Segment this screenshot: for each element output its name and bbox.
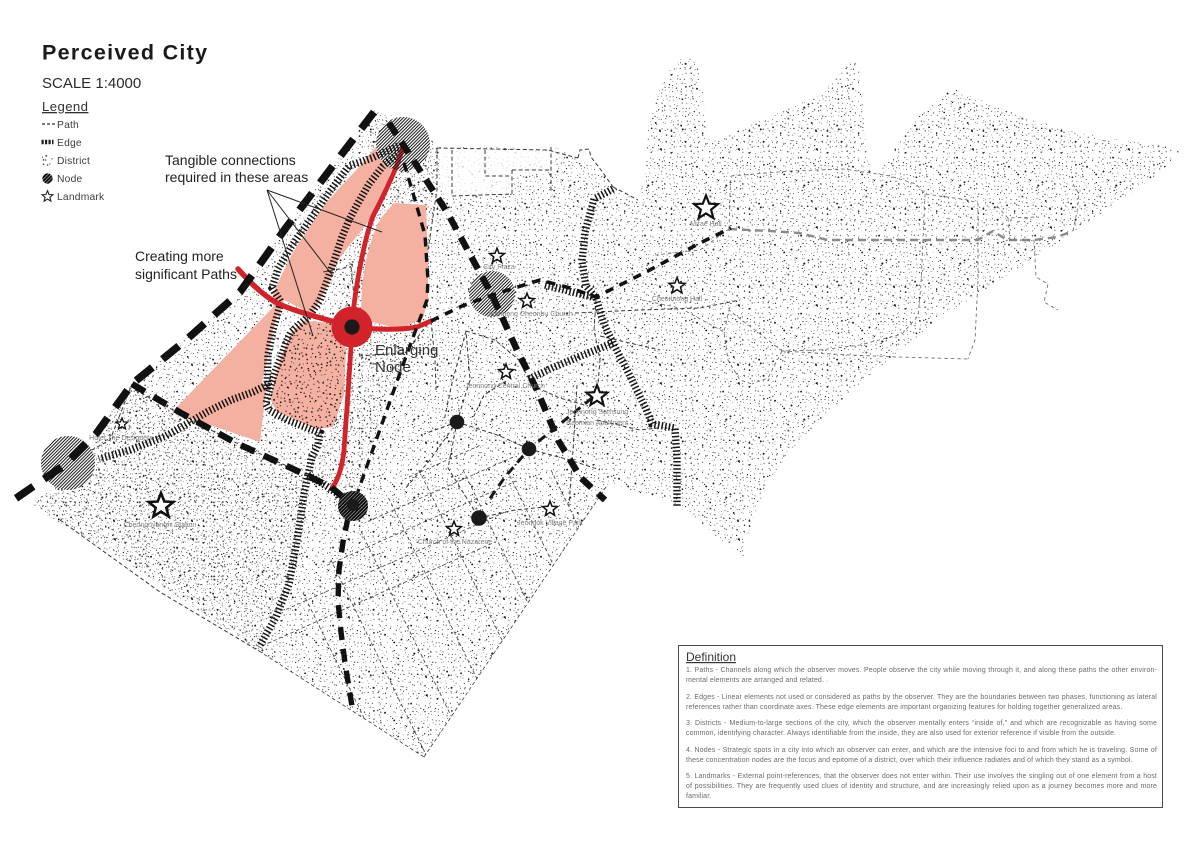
svg-text:Node: Node [57,174,82,185]
svg-text:Definition: Definition [686,650,736,664]
svg-text:Enlarging: Enlarging [375,342,438,359]
svg-text:Cheongnyangni Station: Cheongnyangni Station [124,522,197,529]
svg-text:SCALE 1:4000: SCALE 1:4000 [42,75,141,92]
svg-text:Perceived City: Perceived City [42,41,208,65]
svg-text:Jeonnong Cheonbu Church: Jeonnong Cheonbu Church [487,311,573,318]
svg-text:Cheonnong Hall: Cheonnong Hall [652,296,703,303]
svg-text:Edge: Edge [57,138,82,149]
svg-text:Raemian Apartment: Raemian Apartment [566,420,628,427]
svg-text:Hotel The Designers: Hotel The Designers [89,435,153,442]
svg-text:significant Paths: significant Paths [135,266,237,282]
svg-text:Jeongok Village Park: Jeongok Village Park [517,520,583,527]
svg-text:Jeonnong Samsung: Jeonnong Samsung [566,409,628,416]
svg-text:Node: Node [375,359,411,376]
svg-text:Jeonnong Central Church: Jeonnong Central Church [465,383,545,390]
svg-text:District: District [57,156,90,167]
svg-text:Path: Path [57,120,79,131]
svg-text:Landmark: Landmark [57,192,105,203]
svg-text:Tangible connections: Tangible connections [165,152,296,168]
svg-text:Mirae Hall: Mirae Hall [690,221,722,228]
svg-text:required in these areas: required in these areas [165,169,308,185]
svg-text:City Plaza: City Plaza [483,264,515,271]
svg-text:Legend: Legend [42,99,88,114]
svg-text:Church of the Nazarene: Church of the Nazarene [418,539,492,546]
svg-text:Creating more: Creating more [135,248,224,264]
